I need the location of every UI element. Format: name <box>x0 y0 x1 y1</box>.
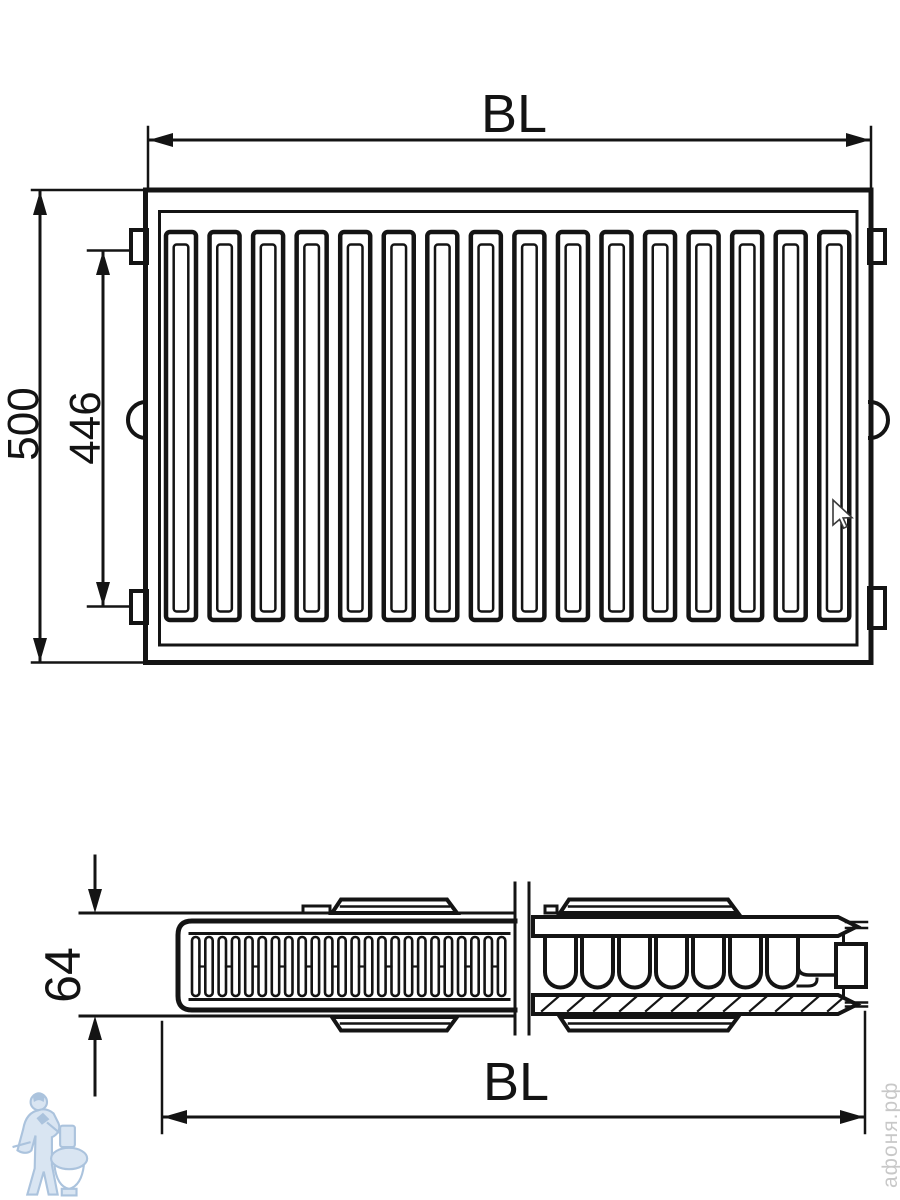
vendor-logo-plumber-icon <box>13 1093 88 1195</box>
arrowhead-down <box>96 582 110 606</box>
arrowhead-left <box>163 1110 187 1124</box>
dim-label-depth-64: 64 <box>35 947 91 1003</box>
dim-label-width-bottom: BL <box>483 1052 549 1112</box>
watermark-text: афоня.рф <box>879 1082 900 1188</box>
side-view <box>80 883 867 1034</box>
arrowhead-up <box>96 251 110 275</box>
arrowhead-down <box>33 638 47 662</box>
radiator-dimension-drawing: BL 500 446 <box>0 0 900 1200</box>
back-panel-bar <box>533 917 857 936</box>
radiator-inner-frame <box>160 212 858 646</box>
dimension-height-446: 446 <box>61 251 131 607</box>
radiator-channels <box>166 232 849 620</box>
arrowhead-right <box>840 1110 864 1124</box>
arrowhead-right <box>846 133 870 147</box>
dim-label-height-500: 500 <box>0 387 48 460</box>
drawing-canvas: BL 500 446 <box>0 0 900 1200</box>
arrowhead-left <box>149 133 173 147</box>
dim-label-height-446: 446 <box>61 391 110 464</box>
front-view <box>128 190 888 663</box>
dim-label-width-top: BL <box>481 84 547 144</box>
dimension-depth-64: 64 <box>35 856 102 1095</box>
arrowhead-up <box>33 191 47 215</box>
arrowhead-up <box>88 1016 102 1040</box>
convector-fins-top-view <box>545 936 798 987</box>
arrowhead-down <box>88 889 102 913</box>
connection-boss <box>836 944 866 987</box>
